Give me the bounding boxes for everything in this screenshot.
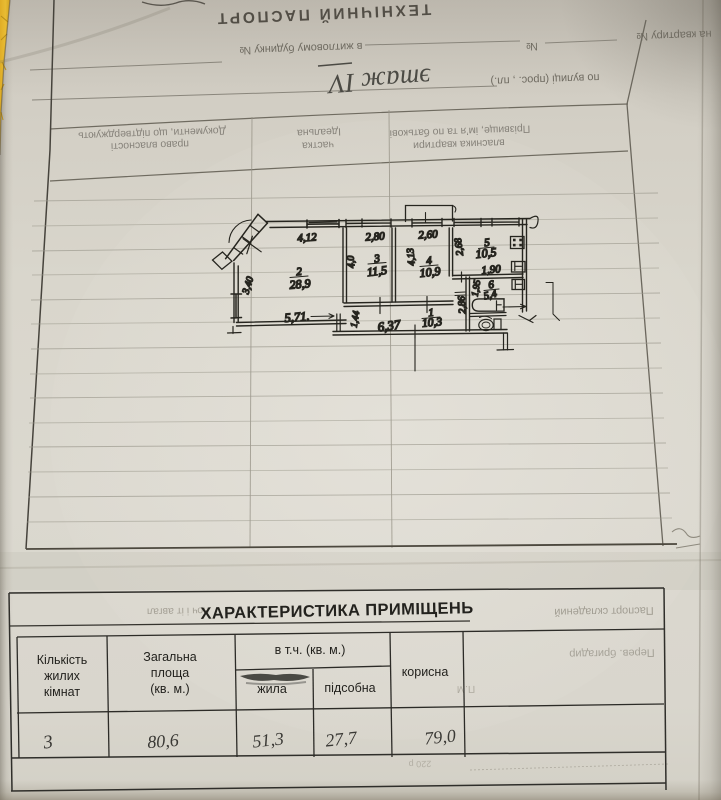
- svg-text:2,86: 2,86: [457, 296, 469, 314]
- svg-text:Загальна: Загальна: [143, 650, 196, 664]
- svg-text:2,60: 2,60: [418, 228, 439, 241]
- svg-text:підсобна: підсобна: [324, 681, 375, 695]
- svg-text:11,5: 11,5: [366, 263, 388, 279]
- svg-text:4,0: 4,0: [345, 255, 357, 268]
- svg-text:1,90: 1,90: [481, 263, 502, 277]
- svg-text:Ідеальна: Ідеальна: [297, 125, 342, 139]
- svg-text:в т.ч. (кв. м.): в т.ч. (кв. м.): [275, 643, 346, 657]
- svg-text:Паспорт складений: Паспорт складений: [554, 604, 654, 618]
- svg-text:80,6: 80,6: [147, 730, 180, 752]
- svg-text:10,5: 10,5: [475, 245, 497, 261]
- svg-text:(кв. м.): (кв. м.): [150, 682, 189, 696]
- svg-text:кімнат: кімнат: [44, 685, 80, 699]
- svg-text:79,0: 79,0: [423, 725, 456, 748]
- svg-text:51,3: 51,3: [251, 728, 284, 751]
- svg-text:10,9: 10,9: [419, 264, 441, 280]
- svg-text:4,13: 4,13: [405, 248, 417, 266]
- svg-text:28,9: 28,9: [289, 276, 311, 292]
- svg-text:6,37: 6,37: [377, 317, 402, 335]
- svg-text:5,71.: 5,71.: [284, 309, 310, 325]
- svg-text:корисна: корисна: [402, 665, 449, 679]
- svg-text:№: №: [526, 40, 538, 52]
- svg-text:площа: площа: [151, 666, 189, 680]
- svg-text:2,80: 2,80: [365, 230, 386, 243]
- svg-text:27,7: 27,7: [324, 727, 358, 750]
- svg-text:220 р: 220 р: [409, 759, 432, 769]
- svg-text:10,3: 10,3: [422, 316, 443, 330]
- svg-text:2,68: 2,68: [453, 237, 466, 256]
- svg-text:жилих: жилих: [44, 669, 81, 683]
- svg-text:частка: частка: [302, 138, 335, 151]
- svg-text:Перев. бригадир: Перев. бригадир: [569, 646, 655, 659]
- svg-text:П.М: П.М: [457, 683, 475, 694]
- svg-text:4,12: 4,12: [297, 231, 318, 244]
- svg-text:Кількість: Кількість: [37, 653, 88, 667]
